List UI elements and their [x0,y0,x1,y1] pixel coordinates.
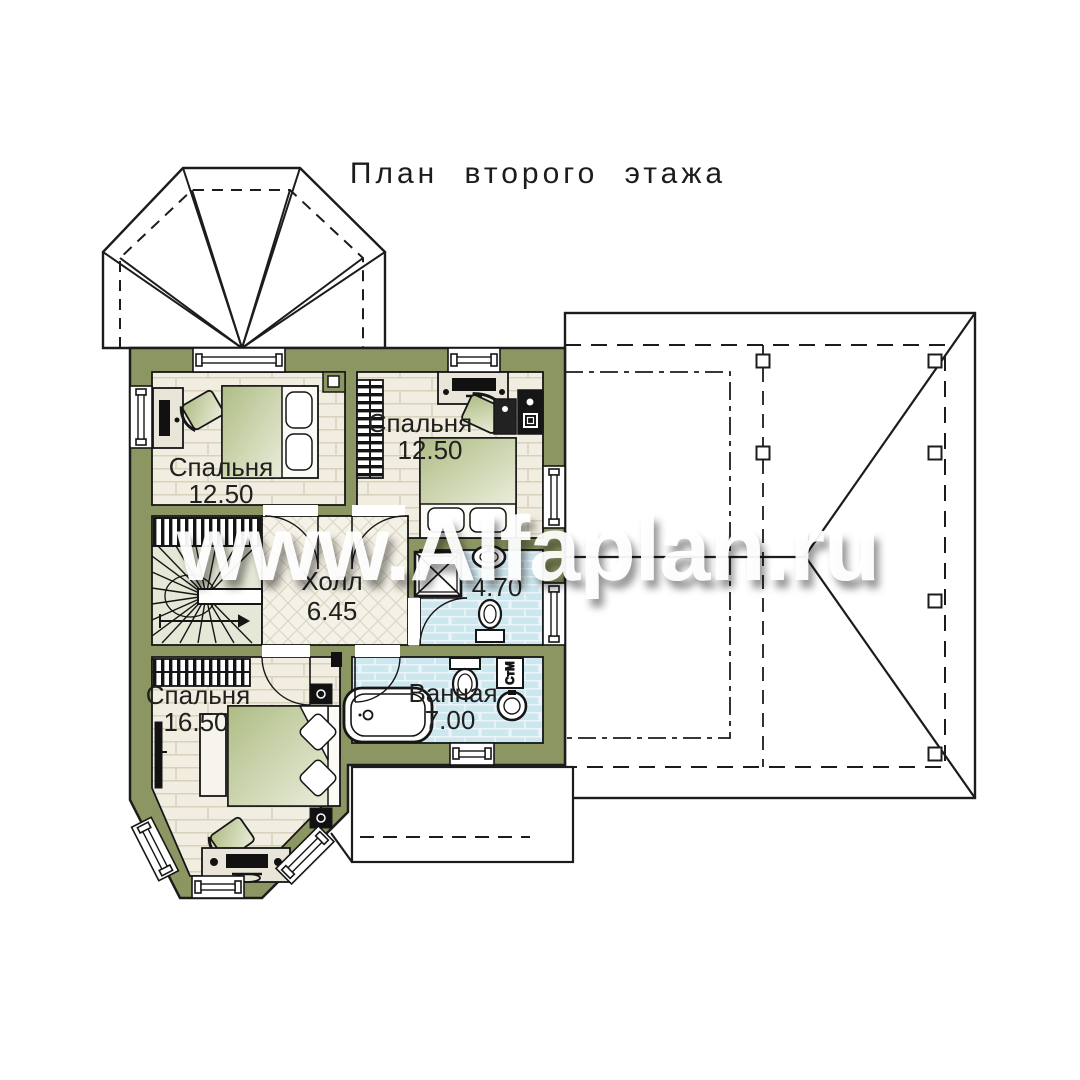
speaker-icon [310,684,332,704]
bed-icon [228,706,340,806]
bedroom1-name: Спальня [169,452,273,482]
door-stop-block [331,652,342,667]
hall-area: 6.45 [307,596,358,626]
bedroom2-area: 12.50 [397,435,462,465]
watermark: www.Alfaplan.ru [176,498,879,600]
nightstand-icon [494,399,516,434]
speaker-icon [310,808,332,828]
floor-plan-page: СтМ [0,0,1080,1080]
window [448,348,500,372]
window [130,386,152,448]
chimney-icon [518,390,543,434]
desk-icon [153,388,183,448]
bedroom3-name: Спальня [146,680,250,710]
turret-roof-outline [103,168,385,348]
vent-pier [323,372,345,392]
plan-title: План второго этажа [350,157,726,190]
floor-plan-drawing: СтМ [0,0,1080,1080]
washing-machine-label: СтМ [505,661,517,685]
bay-window [192,876,244,898]
bathroom-area: 7.00 [425,705,476,735]
washing-machine-icon: СтМ [497,658,523,688]
bathroom-name: Ванная [408,678,497,708]
turret-roof-plan [103,168,385,348]
bedroom2-name: Спальня [368,408,472,438]
porch-roof-plan [331,767,573,862]
toilet-icon [476,600,504,642]
window [193,348,285,372]
bedroom3-area: 16.50 [163,707,228,737]
sink-icon [498,690,526,720]
window [450,743,494,765]
